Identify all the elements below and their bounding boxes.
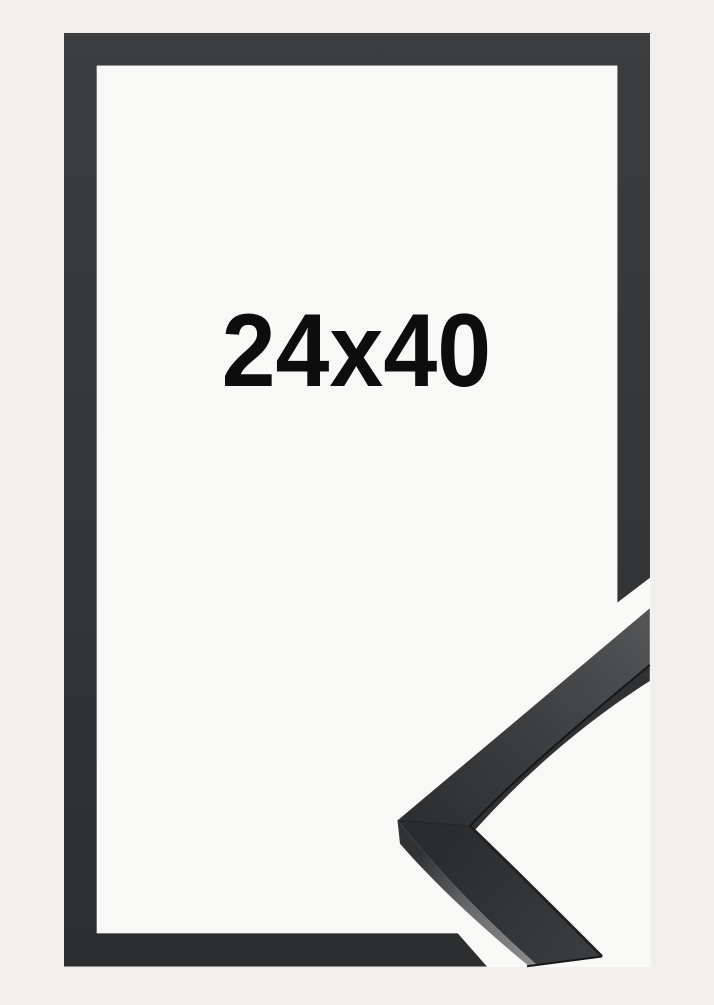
svg-text:24x40: 24x40 — [222, 293, 492, 409]
